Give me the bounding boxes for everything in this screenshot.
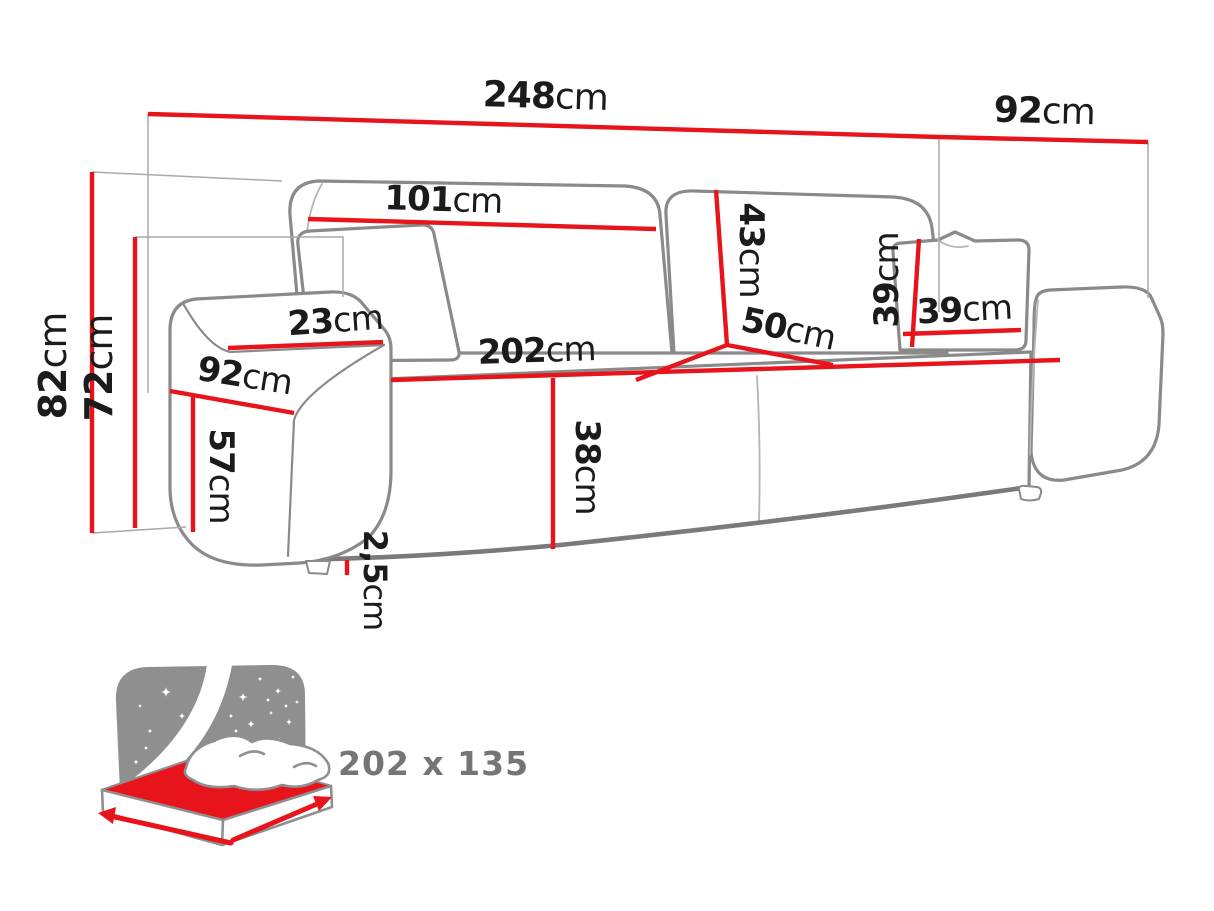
dim-line-total-depth (939, 137, 1148, 142)
diagram-canvas: 248cm 92cm 101cm 43cm 82cm 72cm 23cm 92c… (0, 0, 1214, 911)
dim-label-total-width: 248cm (482, 74, 608, 119)
seat-body (288, 352, 1031, 560)
dim-label-leg-height: 2,5cm (356, 530, 394, 630)
dim-label-seat-width: 202cm (477, 329, 596, 373)
dim-label-seat-height: 38cm (567, 419, 607, 514)
sofa-dimension-diagram: 248cm 92cm 101cm 43cm 82cm 72cm 23cm 92c… (0, 0, 1214, 911)
dim-label-armrest-width: 23cm (286, 298, 384, 345)
sofa-leg-right (1019, 486, 1041, 501)
dim-label-frame-height: 72cm (77, 315, 121, 422)
dim-label-pillow-width: 39cm (916, 288, 1013, 333)
dim-line-total-width (148, 114, 939, 137)
sofa-leg-left (306, 561, 330, 574)
sleeping-area-icon: 202 x 135 (98, 665, 529, 845)
sofa-drawing (170, 181, 1163, 574)
sleeping-area-size: 202 x 135 (338, 744, 529, 783)
dim-label-backrest-cushion-width: 101cm (384, 178, 503, 222)
dim-label-pillow-height: 39cm (867, 232, 907, 327)
dim-label-backrest-cushion-height: 43cm (731, 202, 771, 297)
ext-height-bottom (92, 527, 186, 533)
dim-label-total-depth: 92cm (993, 90, 1095, 134)
dim-label-total-height: 82cm (31, 313, 75, 420)
dim-label-armrest-height: 57cm (201, 428, 241, 523)
ext-total-height-top (92, 172, 282, 181)
armrest-right (1031, 287, 1163, 480)
